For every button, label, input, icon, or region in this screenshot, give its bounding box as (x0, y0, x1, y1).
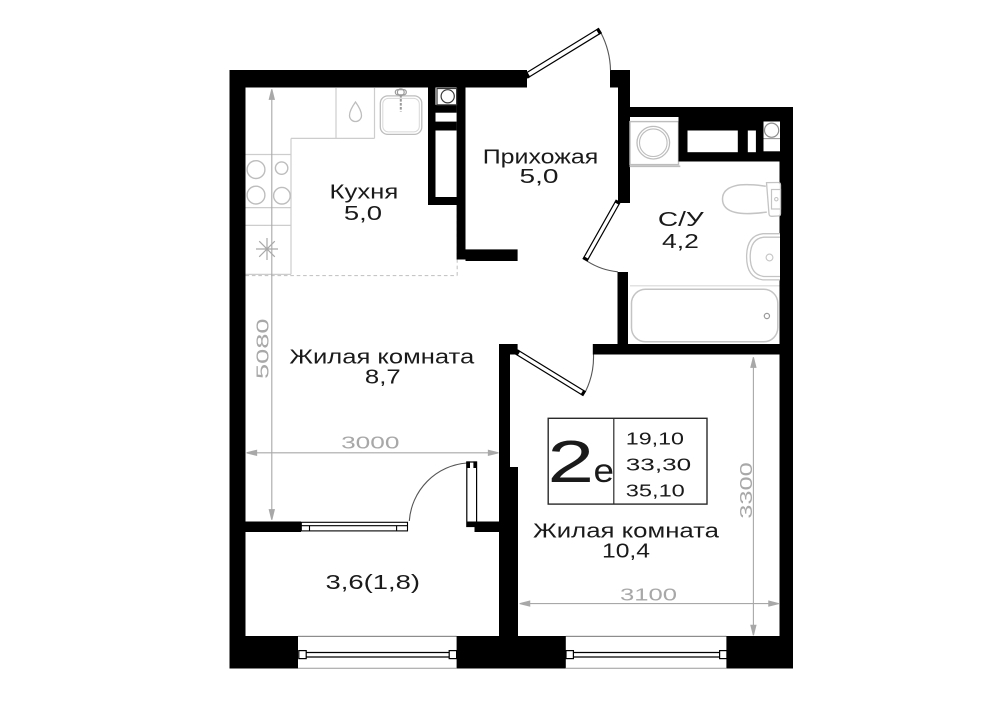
svg-text:2: 2 (548, 429, 595, 495)
svg-text:5,0: 5,0 (344, 203, 382, 225)
svg-text:19,10: 19,10 (626, 429, 684, 449)
svg-text:5,0: 5,0 (520, 166, 559, 188)
svg-text:10,4: 10,4 (602, 540, 650, 562)
svg-text:3,6(1,8): 3,6(1,8) (326, 572, 421, 594)
svg-text:33,30: 33,30 (626, 454, 691, 474)
svg-text:Жилая комната: Жилая комната (289, 346, 475, 368)
svg-text:5080: 5080 (252, 319, 272, 380)
svg-text:Жилая комната: Жилая комната (533, 521, 720, 543)
svg-text:Кухня: Кухня (330, 181, 399, 203)
svg-text:4,2: 4,2 (662, 231, 699, 253)
svg-text:е: е (594, 453, 615, 490)
svg-text:3100: 3100 (620, 585, 677, 605)
svg-text:С/У: С/У (658, 209, 704, 231)
svg-text:35,10: 35,10 (626, 480, 685, 500)
svg-text:3300: 3300 (736, 462, 756, 519)
svg-text:Прихожая: Прихожая (483, 146, 599, 168)
svg-text:3000: 3000 (341, 432, 399, 452)
svg-text:8,7: 8,7 (365, 366, 401, 388)
